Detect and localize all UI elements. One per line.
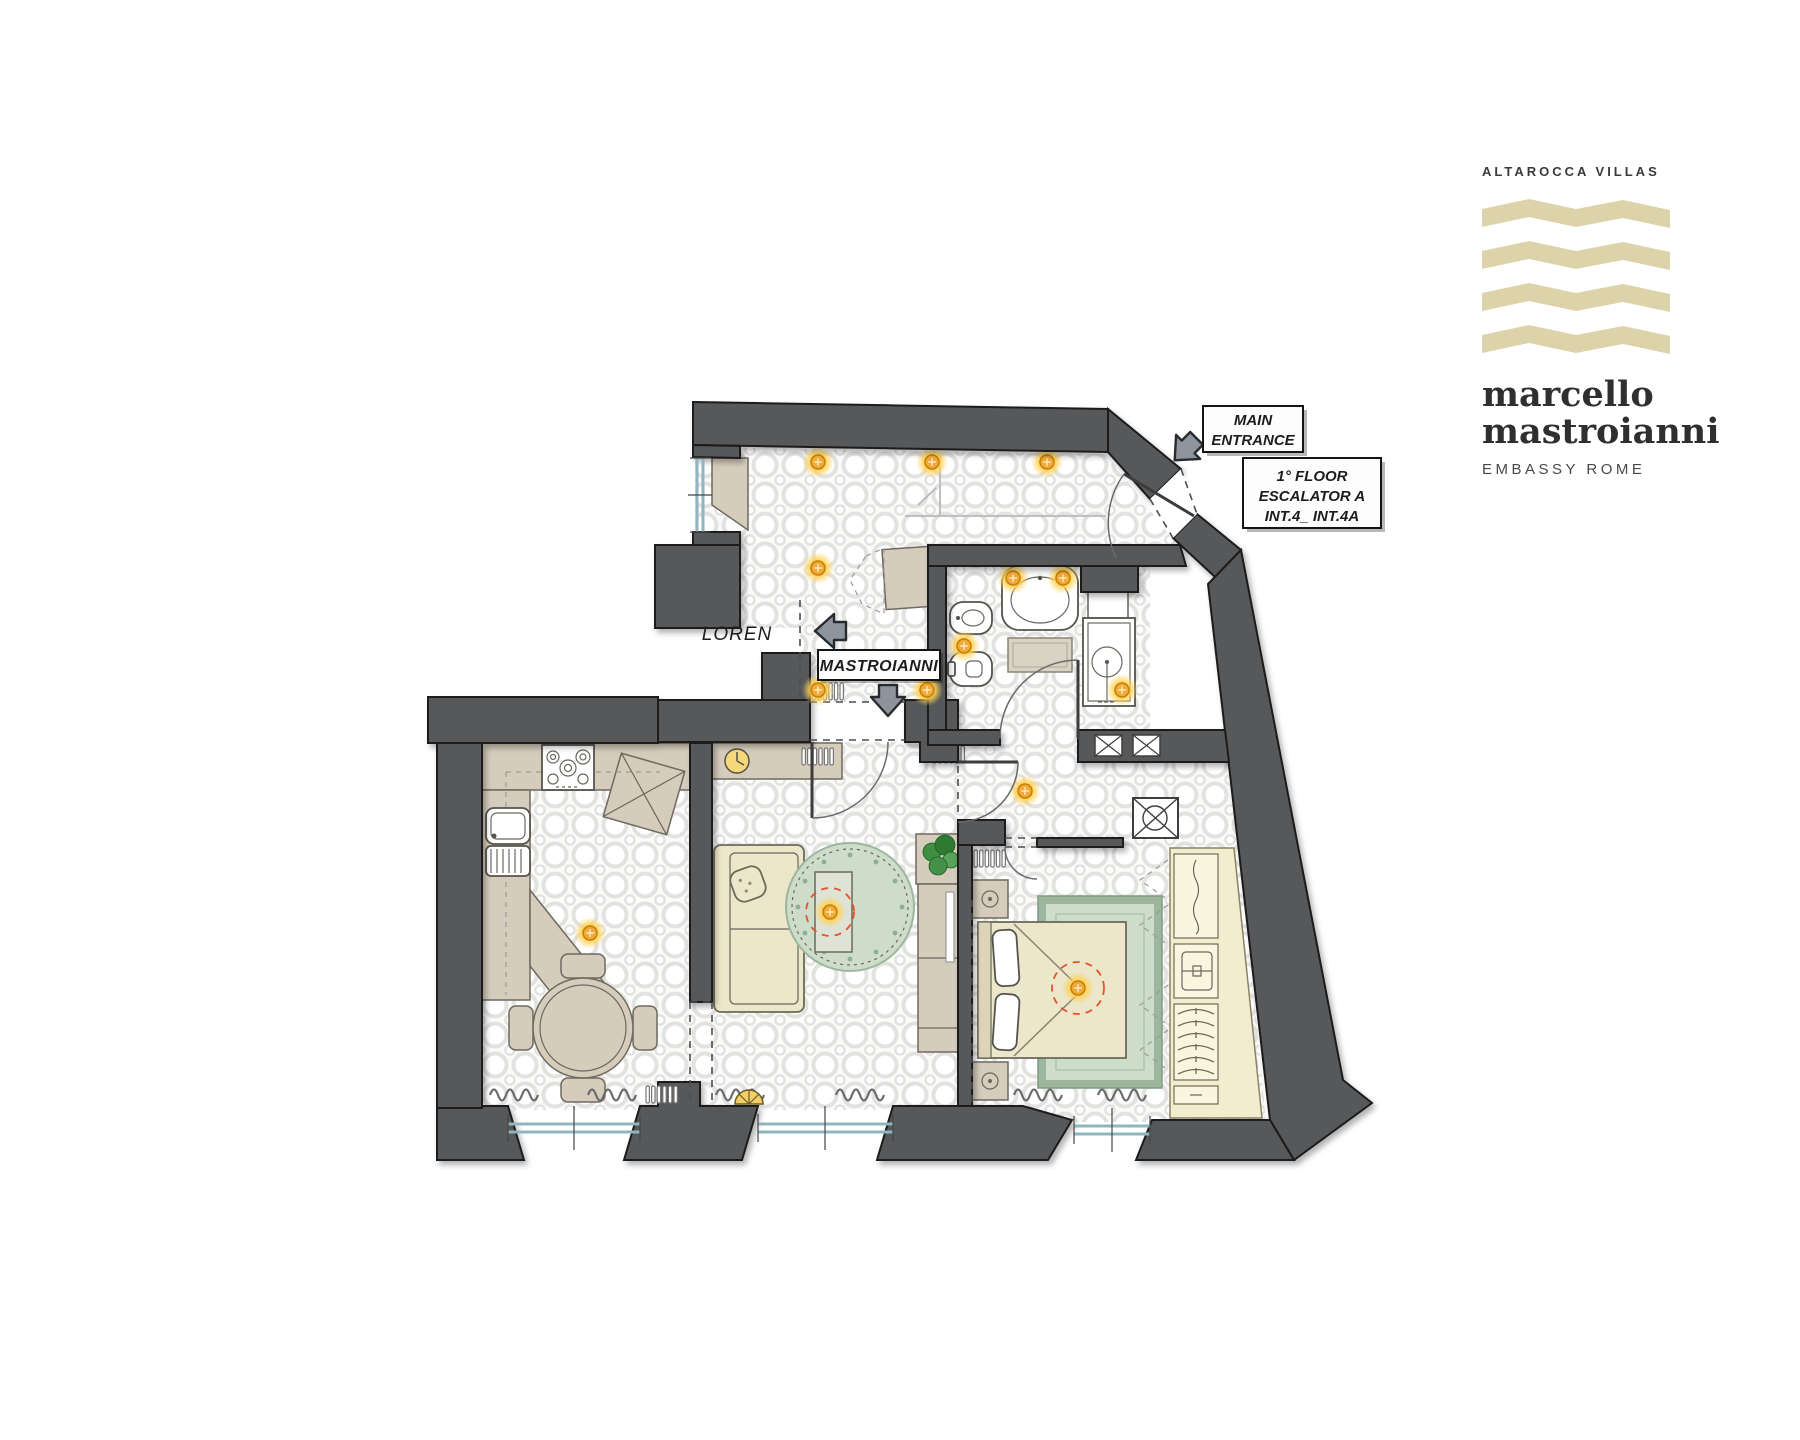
ceiling-light-icon <box>1009 775 1041 807</box>
floor-info-line3: INT.4_ INT.4A <box>1265 508 1359 525</box>
floor-info-line1: 1° FLOOR <box>1276 468 1347 485</box>
ceiling-light-icon <box>574 917 606 949</box>
main-entrance-line2: ENTRANCE <box>1211 432 1295 449</box>
brand-title-line2: mastroianni <box>1482 413 1712 450</box>
nightstand <box>972 1062 1008 1100</box>
unit-name-label: MASTROIANNI <box>820 658 938 675</box>
ceiling-light-icon <box>916 446 948 478</box>
brand-subtitle: EMBASSY ROME <box>1482 461 1712 478</box>
ceiling-light-icon <box>802 446 834 478</box>
pendant-light-icon <box>814 896 846 928</box>
stove-icon <box>542 745 594 790</box>
shaft <box>1133 798 1178 838</box>
ceiling-light-icon <box>948 630 980 662</box>
plant-icon <box>916 834 960 884</box>
window <box>508 1106 640 1150</box>
brand-title-line1: marcello <box>1482 376 1712 413</box>
brand-name: ALTAROCCA VILLAS <box>1482 164 1712 179</box>
dining-chair <box>633 1006 657 1050</box>
tall-cabinet <box>918 884 958 1052</box>
dining-chair <box>561 954 605 978</box>
ceiling-light-icon <box>802 552 834 584</box>
logo-waves-icon <box>1482 195 1672 357</box>
nightstand <box>972 880 1008 918</box>
bath-mat <box>1008 638 1072 672</box>
dining-chair <box>509 1006 533 1050</box>
neighbor-unit-label: LOREN <box>702 624 772 645</box>
kitchen-sink-icon <box>486 808 530 876</box>
main-entrance-line1: MAIN <box>1234 412 1273 429</box>
floor-plan-page: LOREN MASTROIANNI MAIN ENTRANCE 1° FLOOR… <box>0 0 1800 1440</box>
pendant-light-icon <box>1062 972 1094 1004</box>
ceiling-light-icon <box>1106 674 1138 706</box>
floor-info-line2: ESCALATOR A <box>1259 488 1365 505</box>
round-rug <box>786 843 914 971</box>
window <box>758 1106 893 1150</box>
bidet <box>950 602 992 634</box>
brand-logo: ALTAROCCA VILLAS marcello mastroianni EM… <box>1482 164 1712 478</box>
mirror <box>946 892 954 962</box>
hall-desk <box>882 546 932 609</box>
clock-icon <box>725 749 749 773</box>
